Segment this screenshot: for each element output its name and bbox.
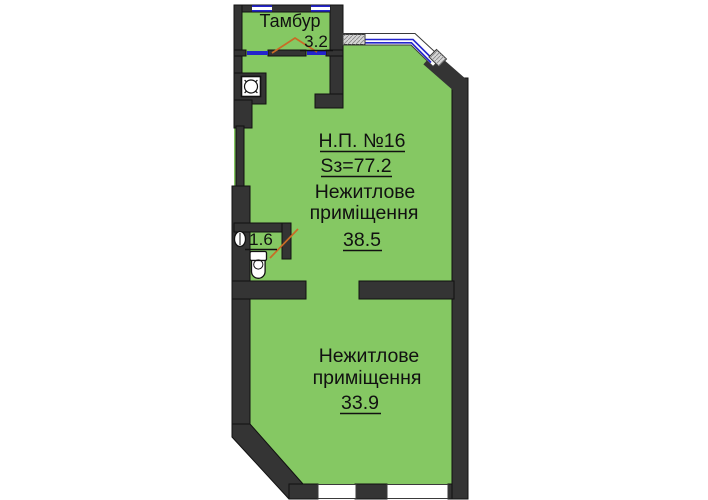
wall-left-thin: [236, 126, 244, 188]
wc-area-label: 1.6: [249, 230, 273, 249]
floor-plan-page: Тамбур 3.2 Н.П. №16 Sз=77.2 Нежитлове пр…: [0, 0, 708, 500]
tambour-area-label: 3.2: [304, 32, 328, 51]
wall-tambour-right-foot: [315, 94, 343, 108]
room-lower-name-line2: приміщення: [313, 367, 422, 389]
unit-interior-area: [234, 5, 468, 499]
unit-number-label: Н.П. №16: [319, 130, 406, 152]
toilet-tank: [250, 252, 267, 261]
bottom-window2-glass: [387, 485, 448, 499]
room-upper-name-line1: Нежитлове: [315, 181, 416, 203]
wall-bottom-seg1: [289, 484, 318, 499]
wall-tambour-left: [234, 5, 242, 83]
room-upper-area-label: 38.5: [343, 229, 381, 251]
room-upper-name-line2: приміщення: [310, 202, 419, 224]
unit-total-area-label: Sз=77.2: [320, 155, 391, 177]
bottom-window1-glass: [318, 485, 356, 499]
room-areas: [234, 5, 468, 499]
tambour-name-label: Тамбур: [259, 11, 320, 31]
floor-plan-canvas: Тамбур 3.2 Н.П. №16 Sз=77.2 Нежитлове пр…: [0, 0, 708, 500]
wall-bottom-seg2: [355, 484, 387, 499]
wall-tambour-bottom-seg1: [234, 50, 246, 56]
tambour-top-window1-gap: [252, 7, 272, 10]
wall-divider-left: [232, 281, 306, 299]
wall-divider-right: [359, 281, 454, 299]
toilet-icon: [250, 252, 267, 279]
wall-left-step: [234, 100, 252, 128]
room-lower-name-line1: Нежитлове: [319, 345, 420, 367]
vent-shaft-icon: [242, 77, 261, 97]
tambour-top-window2-gap: [311, 7, 330, 10]
bay-sill-left-hatch: [343, 35, 365, 45]
room-lower-area-label: 33.9: [341, 392, 379, 414]
sink-icon: [235, 232, 246, 247]
